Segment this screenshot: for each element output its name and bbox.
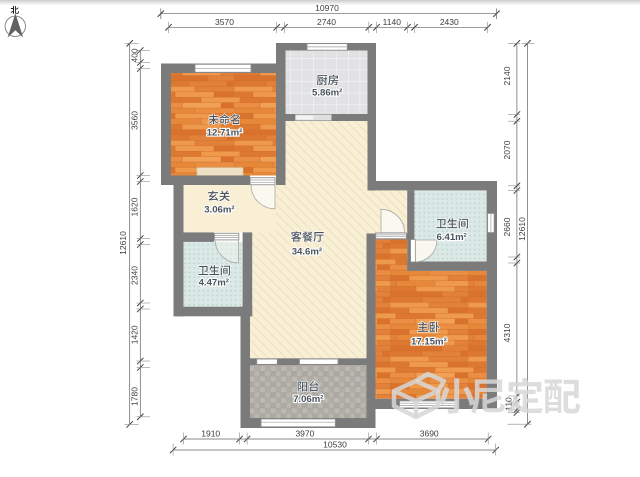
svg-text:3970: 3970 — [295, 429, 314, 439]
svg-text:3.06m²: 3.06m² — [204, 205, 234, 216]
svg-text:17.15m²: 17.15m² — [411, 337, 447, 348]
svg-text:3570: 3570 — [215, 17, 234, 27]
svg-text:1620: 1620 — [130, 197, 140, 216]
svg-text:1140: 1140 — [383, 17, 402, 27]
svg-text:4310: 4310 — [502, 323, 512, 342]
svg-text:10530: 10530 — [323, 440, 347, 450]
svg-text:34.6m²: 34.6m² — [292, 247, 322, 258]
svg-text:2340: 2340 — [130, 266, 140, 285]
svg-text:6.41m²: 6.41m² — [436, 232, 466, 243]
svg-text:7.06m²: 7.06m² — [293, 394, 323, 405]
svg-text:1780: 1780 — [130, 387, 140, 406]
svg-text:2140: 2140 — [502, 66, 512, 85]
svg-text:12610: 12610 — [118, 231, 128, 255]
svg-text:10970: 10970 — [315, 3, 339, 13]
svg-text:1910: 1910 — [201, 429, 220, 439]
svg-text:4.47m²: 4.47m² — [199, 277, 229, 288]
svg-text:2430: 2430 — [440, 17, 459, 27]
svg-text:2740: 2740 — [317, 17, 336, 27]
svg-text:3690: 3690 — [420, 429, 439, 439]
svg-text:2070: 2070 — [502, 140, 512, 159]
svg-text:5.86m²: 5.86m² — [312, 88, 342, 99]
svg-text:2660: 2660 — [502, 217, 512, 236]
svg-text:1420: 1420 — [130, 325, 140, 344]
svg-text:12610: 12610 — [517, 217, 527, 241]
svg-text:400: 400 — [130, 48, 140, 62]
svg-text:12.71m²: 12.71m² — [207, 128, 243, 139]
svg-text:3560: 3560 — [130, 111, 140, 130]
